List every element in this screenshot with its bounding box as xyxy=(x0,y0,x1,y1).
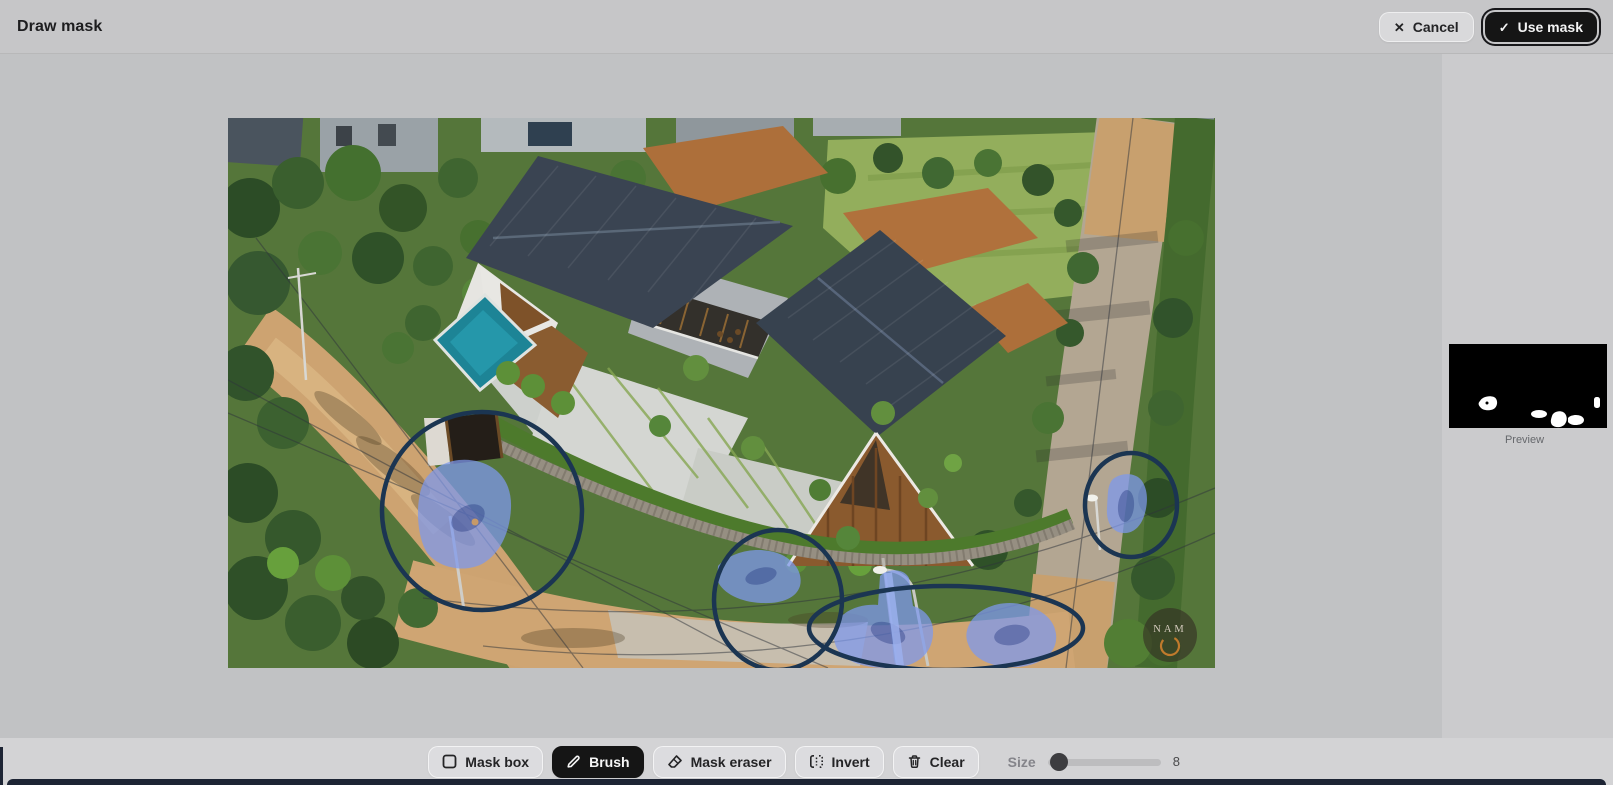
size-value: 8 xyxy=(1173,754,1185,769)
modal-header: Draw mask ✕ Cancel ✓ Use mask xyxy=(0,0,1613,54)
eraser-icon xyxy=(667,754,683,769)
brush-label: Brush xyxy=(589,754,629,770)
close-icon: ✕ xyxy=(1394,21,1405,34)
clear-button[interactable]: Clear xyxy=(893,746,979,778)
size-slider[interactable] xyxy=(1048,753,1161,771)
masked-image[interactable]: NAM xyxy=(228,118,1215,668)
mask-eraser-label: Mask eraser xyxy=(691,754,772,770)
check-icon: ✓ xyxy=(1499,21,1510,34)
size-label: Size xyxy=(1008,754,1036,770)
right-sidebar: Preview xyxy=(1442,54,1613,785)
size-slider-thumb[interactable] xyxy=(1050,753,1068,771)
nam-watermark-logo: NAM xyxy=(1143,608,1197,662)
use-mask-button[interactable]: ✓ Use mask xyxy=(1485,12,1597,42)
invert-label: Invert xyxy=(832,754,870,770)
square-icon xyxy=(442,754,457,769)
mask-preview-thumbnail xyxy=(1449,344,1607,428)
page-title: Draw mask xyxy=(17,18,102,36)
cancel-button-label: Cancel xyxy=(1413,19,1459,35)
brush-button[interactable]: Brush xyxy=(552,746,643,778)
preview-blob-4 xyxy=(1568,415,1584,425)
mask-box-label: Mask box xyxy=(465,754,529,770)
pencil-icon xyxy=(566,754,581,769)
header-actions: ✕ Cancel ✓ Use mask xyxy=(1379,12,1597,42)
mask-eraser-button[interactable]: Mask eraser xyxy=(653,746,786,778)
use-mask-button-label: Use mask xyxy=(1518,19,1583,35)
invert-icon xyxy=(809,754,824,769)
invert-button[interactable]: Invert xyxy=(795,746,884,778)
brush-size-control: Size 8 xyxy=(1008,753,1185,771)
mask-box-button[interactable]: Mask box xyxy=(428,746,543,778)
clear-label: Clear xyxy=(930,754,965,770)
preview-label: Preview xyxy=(1442,434,1607,446)
background-window-edge-bottom xyxy=(7,779,1606,785)
svg-text:NAM: NAM xyxy=(1153,624,1187,635)
background-window-edge-left xyxy=(0,747,3,785)
cancel-button[interactable]: ✕ Cancel xyxy=(1379,12,1474,42)
bottom-toolbar: Mask box Brush Mask eraser Invert Clear … xyxy=(0,738,1613,785)
mask-canvas-area[interactable]: NAM xyxy=(0,54,1442,738)
preview-blob-2 xyxy=(1531,410,1547,418)
trash-icon xyxy=(907,754,922,769)
preview-blob-5 xyxy=(1594,397,1600,408)
